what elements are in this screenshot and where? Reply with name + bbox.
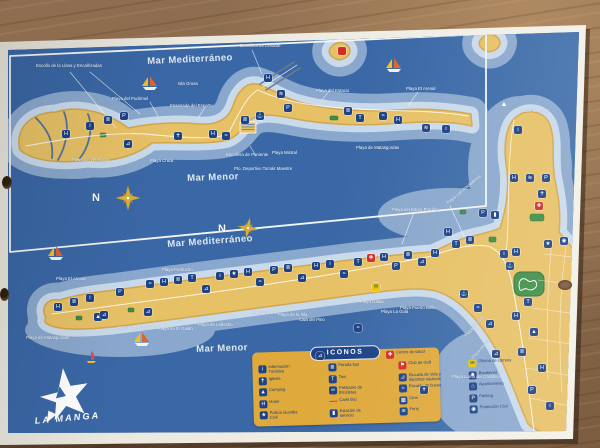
sailing-school-icon: ⊿: [124, 140, 132, 148]
hotel-icon: H: [209, 130, 217, 138]
tourist-info-icon: i: [216, 272, 224, 280]
photo-of-la-manga-map: { "map": { "logo_text": "LA MANGA", "leg…: [0, 0, 600, 448]
tourist-info-icon: i: [546, 402, 554, 410]
bus-stop-icon: ≣: [518, 348, 526, 356]
bus-stop-icon: ≣: [404, 251, 412, 259]
civil-protection-icon: ◉: [560, 237, 568, 245]
tourist-info-icon: i: [326, 260, 334, 268]
taxi-icon: T: [329, 375, 337, 383]
place-label: Playa del Barco Perdido: [392, 208, 439, 212]
sailing-school-icon: ⊿: [100, 311, 108, 319]
golf-club-icon: ⚑: [398, 361, 406, 369]
diving-school-icon: ≈: [399, 384, 407, 392]
camping-icon: ▲: [259, 388, 267, 396]
church-icon: ✝: [538, 190, 546, 198]
bus-stop-icon: ≣: [284, 264, 292, 272]
ferry-icon: ≋: [526, 174, 534, 182]
place-label: Escollo de la Llana y Encañizadas: [36, 64, 102, 68]
diving-school-icon: ≈: [146, 280, 154, 288]
health-centre-icon: ✚: [386, 351, 394, 359]
hotel-icon: H: [62, 130, 70, 138]
legend-row: ✉Oficina de correos: [468, 358, 538, 369]
taxi-icon: T: [188, 274, 196, 282]
compass-north-label: N: [92, 192, 100, 204]
sailing-school-icon: ⊿: [399, 373, 407, 381]
police-icon: ★: [260, 412, 268, 420]
la-manga-map: ICONOS ✚Centro de salud iInformación Tur…: [0, 0, 600, 448]
bus-stop-icon: ≣: [466, 236, 474, 244]
civil-protection-icon: ◉: [470, 406, 478, 414]
sailing-school-icon: ⊿: [202, 285, 210, 293]
legend-columns: iInformación Turística✝Iglesia▲CampingHH…: [258, 360, 438, 425]
police-icon: ★: [544, 240, 552, 248]
place-label: Playa Galúa: [360, 300, 384, 304]
tourist-info-icon: i: [258, 365, 266, 373]
tourist-info-icon: i: [500, 250, 508, 258]
hotel-icon: H: [512, 312, 520, 320]
diving-school-icon: ≈: [379, 112, 387, 120]
cinema-icon: ▦: [399, 396, 407, 404]
camping-icon: ▲: [530, 328, 538, 336]
legend-label: Taxi: [339, 374, 374, 379]
diving-school-icon: ≈: [340, 270, 348, 278]
sea-label: Mar Menor: [196, 342, 248, 355]
sailing-school-icon: ⊿: [486, 320, 494, 328]
legend-label: Oficina de correos: [478, 358, 513, 363]
tourist-info-icon: i: [86, 294, 94, 302]
parking-icon: P: [392, 262, 400, 270]
hotel-icon: H: [394, 116, 402, 124]
legend-row: PParking: [469, 392, 539, 403]
tourist-info-icon: i: [86, 122, 94, 130]
compass-rose-north-map: [116, 186, 140, 210]
place-label: Escollera de Levante: [240, 44, 281, 48]
legend-label: Cine: [409, 395, 444, 400]
sailing-school-icon: ⊿: [492, 350, 500, 358]
place-label: Playa de El Galán: [158, 327, 193, 331]
legend-column: ⚑Club de Golf⊿Escuela de Vela y deportes…: [398, 360, 470, 422]
place-label: Playa de Matasgordas: [356, 146, 399, 150]
post-office-icon: ✉: [468, 359, 476, 367]
tourist-info-icon: i: [514, 126, 522, 134]
marina-icon: ⚓: [460, 290, 468, 298]
church-icon: ✝: [420, 386, 428, 394]
legend-label: Ferry: [410, 407, 445, 412]
legend-row: ★Policía Guardia Civil: [260, 410, 330, 421]
legend-row: ∞Préstamo de Bicicletas: [329, 385, 399, 396]
legend-row: ▲Camping: [259, 387, 329, 398]
fuel-station-icon: ▮: [491, 211, 499, 219]
taxi-icon: T: [354, 258, 362, 266]
place-label: Playa de Matasgordas: [26, 336, 69, 340]
legend-row: ≈Escuela de buceo: [399, 383, 469, 394]
diving-spot-icon: ≈: [354, 324, 362, 332]
health-centre-icon: ✚: [367, 254, 375, 262]
hotel-icon: H: [312, 262, 320, 270]
legend-box: ICONOS ✚Centro de salud iInformación Tur…: [252, 347, 441, 426]
bus-stop-icon: ≣: [70, 298, 78, 306]
tourist-info-icon: i: [442, 125, 450, 133]
diving-school-icon: ≈: [222, 132, 230, 140]
hotel-icon: H: [160, 278, 168, 286]
health-centre-icon: ✚: [535, 202, 543, 210]
legend-row: ≣Parada bus: [328, 362, 398, 373]
karting-track: [514, 272, 544, 296]
post-office-icon: ✉: [372, 283, 380, 291]
sailing-school-icon: ⊿: [144, 308, 152, 316]
place-label: Playa del Pudrimel: [112, 97, 148, 101]
place-label: Playa Puerto Bello: [400, 306, 436, 310]
place-label: Playa El Arenal: [56, 277, 85, 281]
place-label: Playa de la Isla: [278, 313, 307, 317]
hotel-icon: H: [431, 249, 439, 257]
parking-icon: P: [542, 174, 550, 182]
sailing-school-icon: ⊿: [418, 258, 426, 266]
legend-label: Estación de servicio: [340, 409, 375, 419]
legend-row: ≋Ferry: [400, 406, 470, 417]
legend-row: ▦Cine: [399, 394, 469, 405]
legend-row: iInformación Turística: [258, 363, 328, 374]
marina-icon: ⚓: [506, 262, 514, 270]
paper-tear: [558, 280, 572, 290]
hotel-icon: H: [264, 74, 272, 82]
legend-label: Protección Civil: [480, 405, 515, 410]
taxi-icon: T: [524, 298, 532, 306]
hotel-icon: H: [510, 174, 518, 182]
hotel-icon: H: [444, 228, 452, 236]
place-label: Playa Pedrucho: [162, 268, 193, 272]
legend-label: Préstamo de Bicicletas: [339, 385, 374, 395]
legend-label: Camping: [269, 387, 304, 392]
parking-icon: P: [528, 386, 536, 394]
hotel-icon: H: [54, 303, 62, 311]
isla-grosa-marker-icon: [338, 47, 346, 55]
bike-rental-icon: ∞: [329, 386, 337, 394]
legend-row: ▮Estación de servicio: [330, 408, 400, 419]
sailboat-icon: [46, 246, 66, 267]
legend-label: Parking: [479, 393, 514, 398]
hotel-icon: H: [538, 364, 546, 372]
sailing-school-icon: ⊿: [298, 274, 306, 282]
diving-school-icon: ≈: [256, 278, 264, 286]
legend-label: Ayuntamiento: [479, 382, 514, 387]
town-hall-icon: ⌂: [469, 383, 477, 391]
diving-school-icon: ≈: [474, 304, 482, 312]
taxi-icon: T: [356, 114, 364, 122]
hotel-icon: H: [244, 268, 252, 276]
hotel-icon: H: [512, 248, 520, 256]
place-label: Playa El Pedruchillo: [118, 326, 157, 330]
legend-row: ✝Iglesia: [259, 375, 329, 386]
legend-row: —Carril Bici: [329, 396, 399, 407]
punch-hole: [0, 288, 9, 301]
hotel-icon: H: [380, 253, 388, 261]
windsurfer-icon: [84, 350, 98, 369]
sea-label: Mar Menor: [187, 171, 239, 184]
place-label: Playa El Arenal: [406, 87, 435, 91]
legend-label: Carril Bici: [339, 397, 374, 402]
place-label: Playa de Lebeche: [198, 323, 233, 327]
legend-column: ≣Parada busTTaxi∞Préstamo de Bicicletas—…: [328, 362, 400, 424]
place-label: Pto. Deportivo Tomás Maestre: [234, 167, 292, 171]
parking-icon: P: [120, 112, 128, 120]
windsurf-zone-icon: ⊿: [316, 352, 324, 360]
place-label: Playa Chica: [150, 159, 173, 163]
punch-hole: [2, 176, 12, 189]
place-label: Escollera de Poniente: [226, 153, 268, 157]
bus-stop-icon: ≣: [104, 116, 112, 124]
place-label: Cala del Pino: [299, 318, 325, 322]
legend-row: ⚑Club de Golf: [398, 360, 468, 371]
place-label: Ensenada del Esparto: [170, 104, 213, 108]
parking-icon: P: [116, 288, 124, 296]
parking-icon: P: [284, 104, 292, 112]
place-label: Cabo de Palos: [521, 109, 549, 113]
church-icon: ✝: [174, 132, 182, 140]
sailboat-icon: [384, 58, 404, 79]
compass-north-label: N: [218, 223, 226, 235]
place-label: Playa La Gola: [381, 310, 408, 314]
marina-icon: ⚓: [256, 112, 264, 120]
bus-stop-icon: ≣: [241, 116, 249, 124]
church-icon: ✝: [259, 377, 267, 385]
place-label: Isla Grosa: [178, 82, 198, 86]
legend-label: Policía Guardia Civil: [270, 411, 305, 421]
legend-label: Centro de salud: [396, 350, 431, 355]
legend-row: HHotel: [259, 398, 329, 409]
legend-label: Club de Golf: [408, 360, 443, 365]
place-label: Playa del Estacio: [316, 89, 349, 93]
police-icon: ★: [230, 270, 238, 278]
taxi-icon: T: [452, 240, 460, 248]
parking-icon: P: [270, 266, 278, 274]
bus-stop-icon: ≣: [328, 363, 336, 371]
place-label: Playa Mistral: [272, 151, 297, 155]
legend-label: Hotel: [269, 399, 304, 404]
ferry-icon: ≋: [277, 90, 285, 98]
sailboat-icon: [140, 76, 160, 97]
legend-label: Información Turística: [268, 364, 303, 374]
legend-column: iInformación Turística✝Iglesia▲CampingHH…: [258, 363, 330, 425]
legend-label: Iglesia: [269, 376, 304, 381]
legend-row: TTaxi: [329, 373, 399, 384]
place-label: Playa Aliseos: [252, 311, 278, 315]
legend-row: ◉Protección Civil: [470, 404, 540, 415]
parking-icon: P: [469, 394, 477, 402]
place-label: Playa de Veneciola: [72, 158, 109, 162]
bike-lane-icon: —: [329, 398, 337, 406]
bus-stop-icon: ≣: [174, 276, 182, 284]
ferry-icon: ≋: [400, 408, 408, 416]
fuel-station-icon: ▮: [330, 410, 338, 418]
bus-stop-icon: ≣: [344, 107, 352, 115]
parking-icon: P: [479, 209, 487, 217]
legend-label: Parada bus: [338, 362, 373, 367]
ferry-icon: ≋: [422, 124, 430, 132]
place-label: Playa Loma del Castillico: [452, 375, 500, 379]
legend-label: Escuela de Vela y deportes náuticos: [409, 372, 444, 382]
sailboat-icon: [132, 332, 152, 353]
lighthouse-icon: ▲: [500, 101, 508, 109]
la-manga-logo: LA MANGA: [25, 365, 107, 434]
hotel-icon: H: [259, 400, 267, 408]
